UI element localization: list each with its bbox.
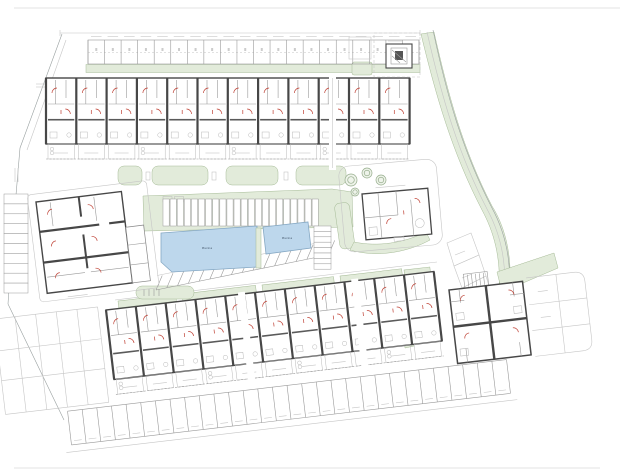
parking-stall	[220, 199, 226, 226]
stall-label-smudge	[454, 395, 462, 396]
stall-label-smudge	[220, 423, 228, 424]
tree-icon	[378, 177, 384, 183]
text-smudge	[391, 354, 405, 356]
terrace	[351, 144, 377, 159]
terrace	[109, 144, 135, 159]
clubhouse-building	[362, 183, 433, 244]
stall-label-smudge	[469, 393, 477, 394]
stall-label-smudge	[440, 397, 448, 398]
stall-label-smudge	[323, 410, 331, 411]
parking-stall	[4, 283, 28, 293]
stall-mark	[344, 48, 346, 51]
stall-divider	[375, 375, 379, 409]
parking-stall	[270, 199, 276, 226]
stall-mark	[228, 48, 230, 51]
stall-mark	[195, 48, 197, 51]
stall-label-smudge	[498, 390, 506, 391]
parking-stall	[234, 199, 240, 226]
stall-mark	[310, 48, 312, 51]
text-smudge	[183, 379, 197, 381]
garden-plots-boundary	[526, 271, 593, 356]
parking-stall	[314, 237, 331, 242]
parking-stall	[314, 242, 331, 247]
party-wall	[106, 78, 108, 144]
terrace	[139, 144, 165, 159]
parking-stall	[170, 199, 176, 226]
stall-divider	[316, 382, 320, 416]
text-smudge	[538, 290, 548, 291]
stall-label-smudge	[294, 414, 302, 415]
stall-mark	[95, 48, 97, 51]
west-parking-column	[4, 194, 28, 293]
stall-label-smudge	[484, 392, 492, 393]
walkway-step	[212, 172, 216, 180]
interior-wall	[78, 119, 104, 121]
party-wall	[45, 78, 47, 144]
parking-stall	[284, 199, 290, 226]
stall-divider	[287, 385, 291, 419]
stall-divider	[302, 384, 306, 418]
parcel-line	[56, 312, 67, 407]
text-smudge	[302, 365, 316, 367]
parking-stall	[4, 234, 28, 244]
parking-stall	[298, 199, 304, 226]
parcel-line	[0, 339, 101, 351]
stair-step	[471, 274, 472, 286]
terrace	[78, 144, 104, 159]
text-smudge	[376, 185, 406, 188]
stall-mark	[211, 48, 213, 51]
stall-divider	[170, 399, 174, 433]
building-outline	[362, 188, 432, 240]
stair-step	[475, 274, 476, 286]
site-plan-sheet: Piscina Piscina	[0, 0, 629, 476]
text-smudge	[541, 316, 551, 317]
furniture	[323, 151, 327, 155]
terrace	[200, 144, 226, 159]
hedge-block	[152, 166, 208, 185]
parcel-line	[77, 309, 88, 404]
stall-divider	[82, 409, 86, 443]
stall-label-smudge	[425, 398, 433, 399]
stall-divider	[126, 404, 130, 438]
stall-label-smudge	[411, 400, 419, 401]
plot-line	[556, 274, 565, 352]
text-smudge	[213, 375, 227, 377]
parking-stall	[314, 226, 331, 231]
text-smudge	[455, 251, 465, 255]
text-smudge	[153, 382, 167, 384]
stall-divider	[272, 251, 283, 266]
parking-stall	[206, 199, 212, 226]
east-pool-parking	[314, 226, 331, 269]
stall-mark	[261, 48, 263, 51]
furniture	[323, 147, 327, 151]
interior-wall	[230, 119, 256, 121]
stall-divider	[331, 380, 335, 414]
stall-divider	[199, 396, 203, 430]
parking-stall	[291, 199, 297, 226]
stall-divider	[261, 254, 272, 269]
parking-stall	[248, 199, 254, 226]
boundary-plot	[454, 255, 486, 288]
parking-stall	[4, 204, 28, 214]
party-wall	[287, 78, 289, 144]
tree-icon	[364, 170, 370, 176]
stall-label-smudge	[147, 431, 155, 432]
furniture	[387, 350, 391, 354]
parking-stall	[262, 199, 268, 226]
garden-parcels-west	[0, 307, 109, 414]
boundary-line	[66, 400, 517, 453]
interior-wall	[109, 119, 135, 121]
north-building-row	[45, 78, 411, 159]
parking-stall	[312, 199, 318, 226]
pool-large-label: Piscina	[202, 246, 213, 250]
party-wall	[136, 78, 138, 144]
stall-divider	[111, 406, 115, 440]
stall-divider	[404, 372, 408, 406]
stall-mark	[161, 48, 163, 51]
pool-small-label: Piscina	[282, 236, 293, 240]
furniture	[50, 151, 54, 155]
interior-wall	[139, 119, 165, 121]
parcel-line	[36, 314, 47, 409]
pool-divider-green	[256, 228, 261, 268]
stall-divider	[243, 391, 247, 425]
plot-line	[532, 324, 590, 331]
furniture	[50, 147, 54, 151]
stall-label-smudge	[396, 402, 404, 403]
stall-divider	[229, 392, 233, 426]
stall-mark	[277, 48, 279, 51]
parking-stall	[4, 224, 28, 234]
stall-divider	[141, 403, 145, 437]
party-wall	[409, 78, 411, 144]
furniture	[119, 386, 123, 390]
stall-divider	[492, 361, 496, 395]
stall-mark	[178, 48, 180, 51]
stall-label-smudge	[250, 419, 258, 420]
stall-mark	[128, 48, 130, 51]
furniture	[119, 382, 123, 386]
party-wall	[196, 78, 198, 144]
parking-stall	[314, 264, 331, 269]
terrace	[260, 144, 286, 159]
walkway-step	[146, 172, 150, 180]
hedge-row	[118, 166, 346, 185]
party-wall	[75, 78, 77, 144]
text-smudge	[421, 351, 435, 353]
furniture	[232, 151, 236, 155]
stall-divider	[389, 373, 393, 407]
west-apartment-block	[27, 180, 159, 302]
parcel-line	[0, 319, 5, 414]
interior-wall	[381, 119, 407, 121]
stall-label-smudge	[133, 433, 141, 434]
terrace	[325, 352, 353, 370]
interior-wall	[290, 119, 316, 121]
stall-mark	[327, 48, 329, 51]
stall-mark	[145, 48, 147, 51]
stall-label-smudge	[74, 440, 82, 441]
party-wall	[227, 78, 229, 144]
parking-stall	[4, 263, 28, 273]
stall-divider	[477, 363, 481, 397]
parking-stall	[227, 199, 233, 226]
party-wall	[166, 78, 168, 144]
stall-divider	[463, 365, 467, 399]
stall-label-smudge	[206, 424, 214, 425]
parking-stall	[255, 199, 261, 226]
boundary-plot	[447, 233, 479, 266]
parking-stall	[4, 253, 28, 263]
parcel-line	[15, 317, 26, 412]
terrace	[169, 144, 195, 159]
stall-divider	[164, 273, 175, 288]
interior-wall	[169, 119, 195, 121]
stall-label-smudge	[381, 404, 389, 405]
parking-stall	[241, 199, 247, 226]
stall-label-smudge	[264, 417, 272, 418]
stall-label-smudge	[367, 405, 375, 406]
stall-divider	[433, 368, 437, 402]
parking-stall	[277, 199, 283, 226]
furniture	[387, 354, 391, 358]
party-wall	[378, 78, 380, 144]
stall-divider	[68, 411, 72, 445]
parking-stall	[191, 199, 197, 226]
terrace	[230, 144, 256, 159]
stall-label-smudge	[235, 421, 243, 422]
interior-wall	[351, 119, 377, 121]
parking-stall	[177, 199, 183, 226]
terrace	[265, 359, 293, 377]
stall-mark	[360, 48, 362, 51]
party-wall	[257, 78, 259, 144]
tree-icon	[353, 190, 357, 194]
stall-divider	[97, 408, 101, 442]
stall-label-smudge	[308, 412, 316, 413]
tree-icon	[348, 177, 355, 184]
interior-wall	[48, 119, 74, 121]
stall-divider	[185, 397, 189, 431]
stall-divider	[175, 271, 186, 286]
site-plan-drawing: Piscina Piscina	[0, 0, 629, 476]
text-smudge	[123, 386, 137, 388]
parking-stall	[213, 199, 219, 226]
interior-wall	[200, 119, 226, 121]
stall-label-smudge	[337, 409, 345, 410]
parking-stall	[314, 248, 331, 253]
furniture	[141, 151, 145, 155]
party-wall	[348, 78, 350, 144]
parking-stall	[163, 199, 169, 226]
stall-label-smudge	[103, 436, 111, 437]
parking-stall	[314, 253, 331, 258]
parking-stall	[199, 199, 205, 226]
parking-stall	[314, 231, 331, 236]
plot-line	[529, 298, 587, 305]
stall-divider	[346, 379, 350, 413]
terrace	[116, 376, 144, 394]
parcel-line	[2, 369, 105, 381]
parking-stall	[4, 273, 28, 283]
stall-label-smudge	[191, 426, 199, 427]
stall-mark	[377, 48, 379, 51]
stall-divider	[155, 401, 159, 435]
parking-edge	[72, 393, 511, 445]
party-wall	[318, 78, 320, 144]
furniture	[298, 365, 302, 369]
hedge-block	[226, 166, 278, 185]
stall-mark	[294, 48, 296, 51]
terrace	[176, 369, 204, 387]
text-smudge	[272, 368, 286, 370]
terrace	[290, 144, 316, 159]
stall-mark	[244, 48, 246, 51]
walkway-step	[284, 172, 288, 180]
stall-label-smudge	[176, 428, 184, 429]
stall-divider	[360, 377, 364, 411]
stall-divider	[258, 389, 262, 423]
interior-wall	[260, 119, 286, 121]
parking-stall	[4, 244, 28, 254]
furniture	[209, 375, 213, 379]
terrace	[381, 144, 407, 159]
parking-stall	[314, 258, 331, 263]
stall-divider	[214, 394, 218, 428]
text-smudge	[68, 294, 88, 296]
stair-step	[483, 273, 484, 285]
stall-divider	[419, 370, 423, 404]
stall-divider	[272, 387, 276, 421]
stall-label-smudge	[352, 407, 360, 408]
stall-divider	[507, 360, 511, 394]
stall-label-smudge	[118, 435, 126, 436]
southwest-boundary	[8, 304, 64, 420]
north-parking-row	[88, 37, 419, 65]
parking-stall	[4, 214, 28, 224]
furniture	[297, 361, 301, 365]
furniture	[141, 147, 145, 151]
stall-mark	[112, 48, 114, 51]
stall-label-smudge	[89, 438, 97, 439]
furniture	[232, 147, 236, 151]
stall-label-smudge	[279, 416, 287, 417]
stall-divider	[448, 366, 452, 400]
furniture	[208, 371, 212, 375]
parking-stall	[184, 199, 190, 226]
terrace	[48, 144, 74, 159]
stall-label-smudge	[162, 429, 170, 430]
text-smudge	[332, 361, 346, 363]
hedge-block	[296, 166, 346, 185]
parking-stall	[4, 194, 28, 204]
